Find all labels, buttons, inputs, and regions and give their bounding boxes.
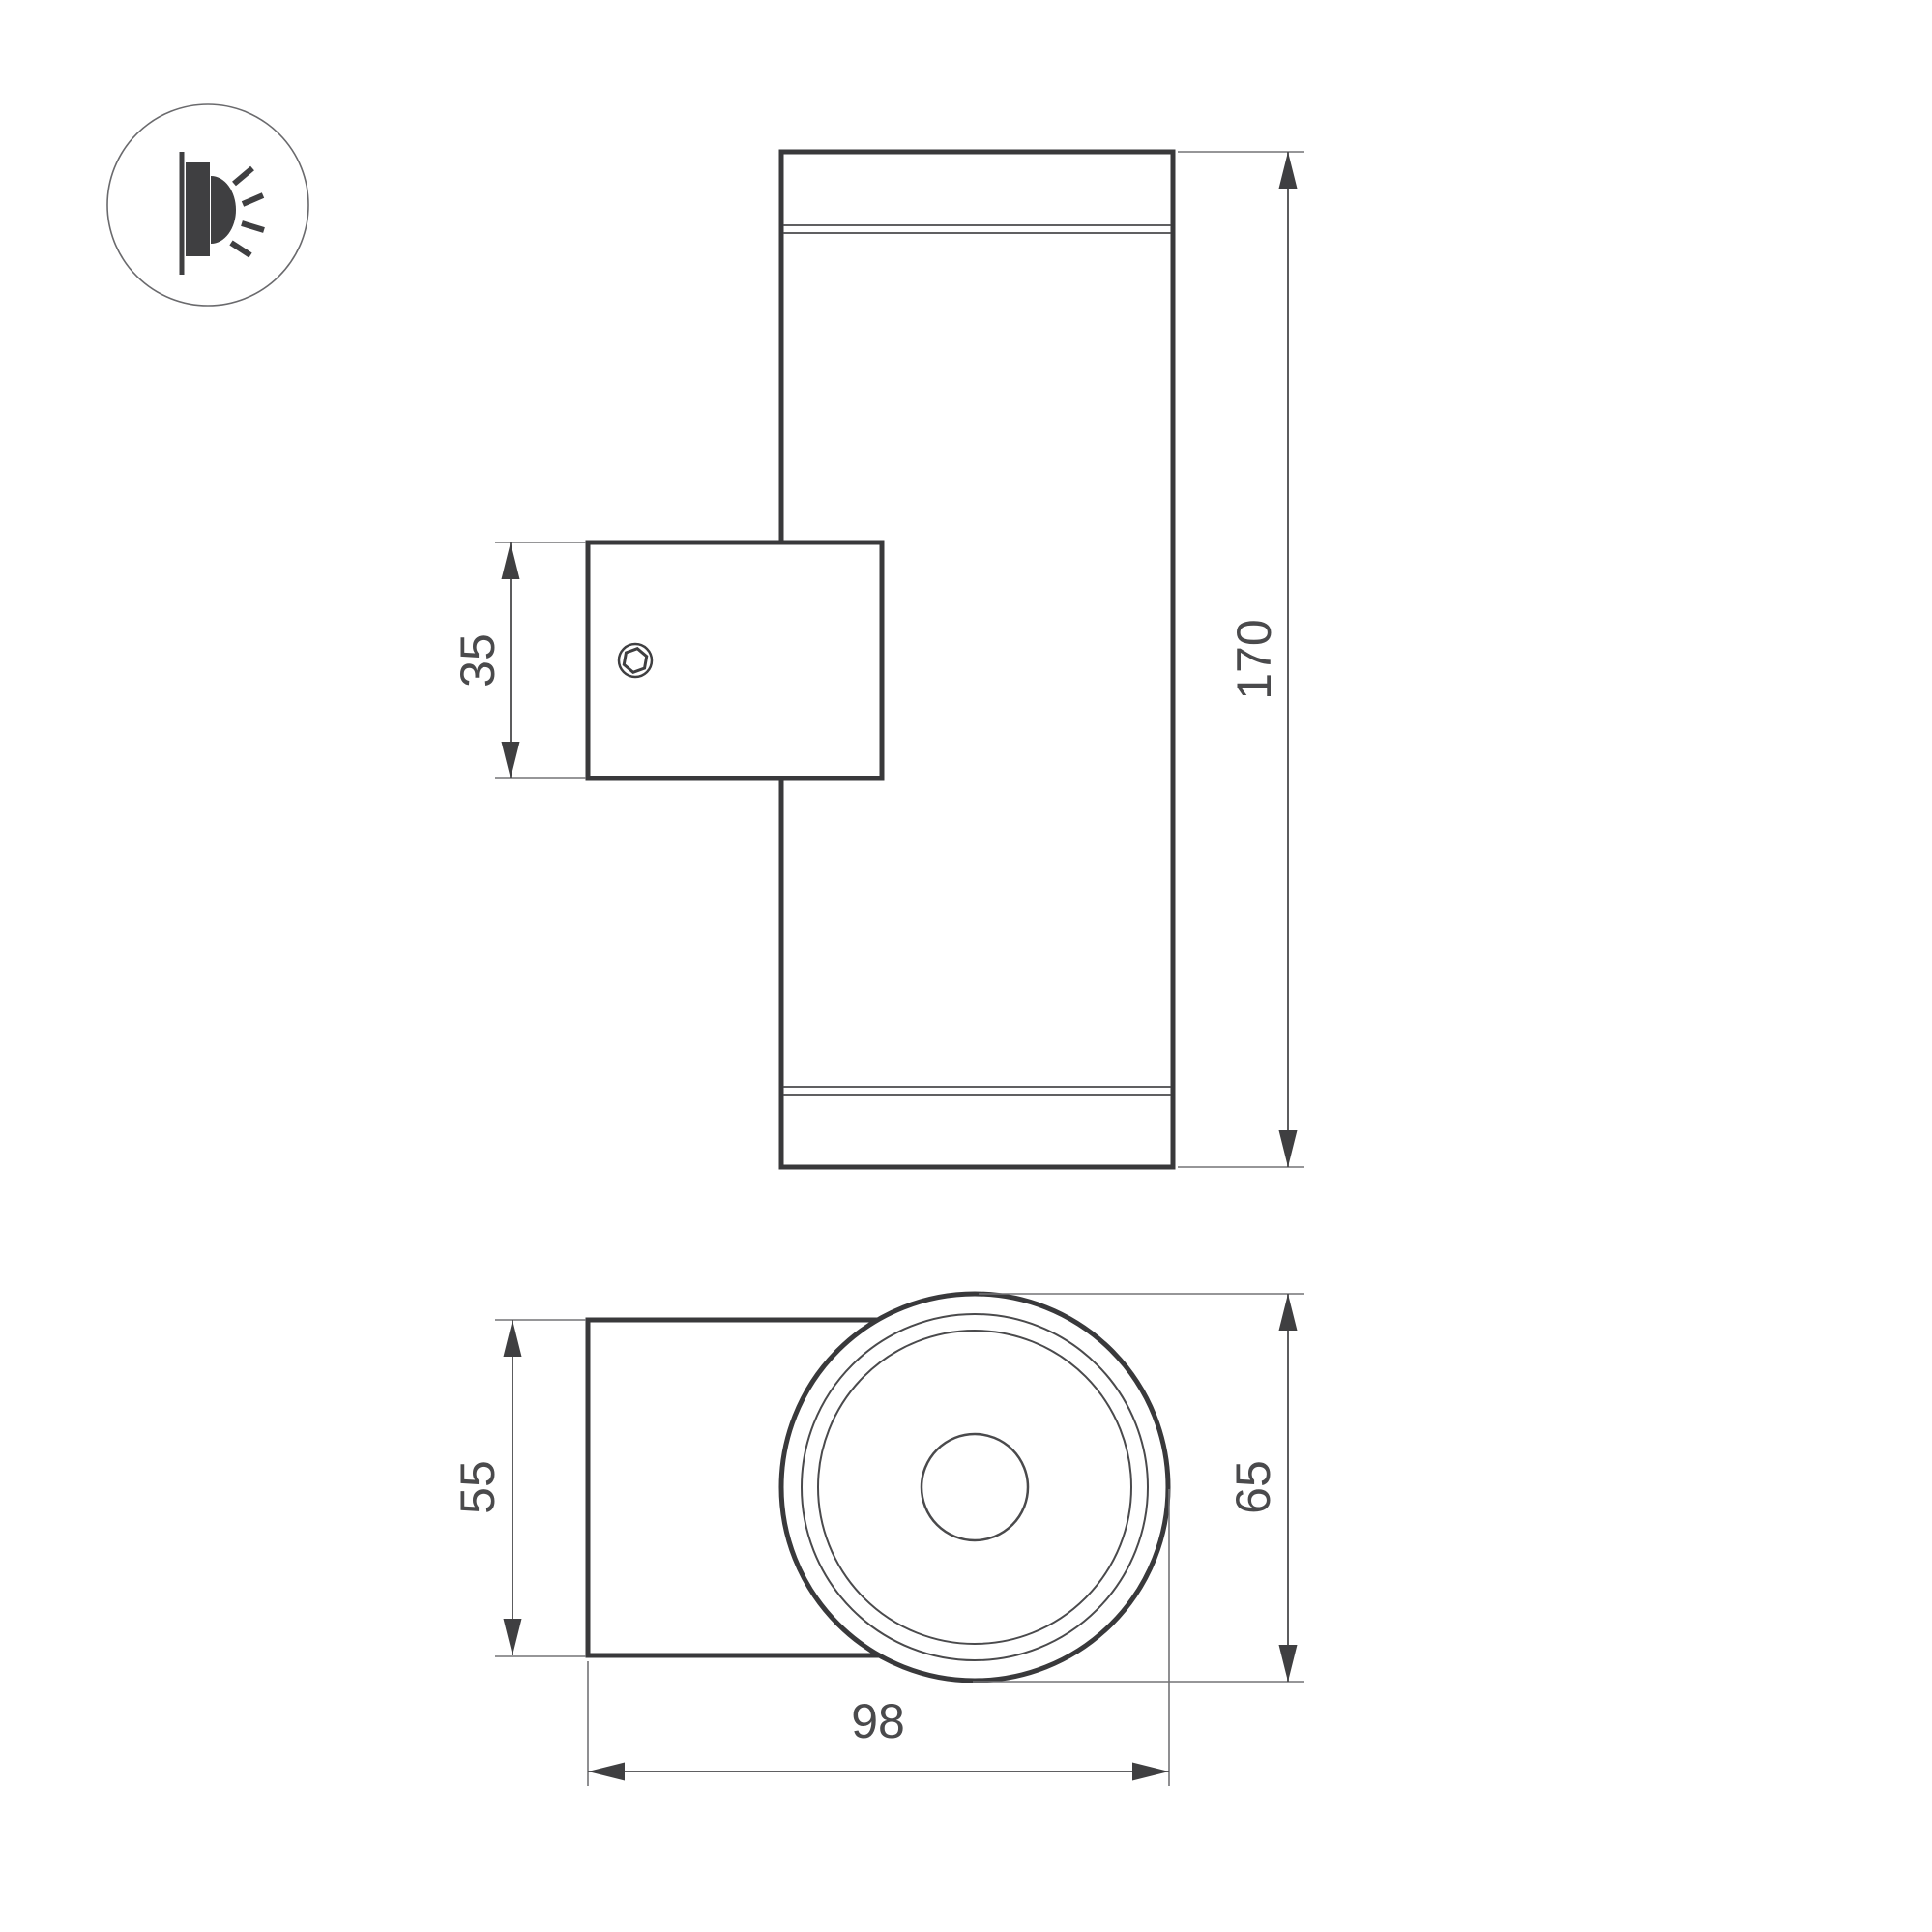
- lamp-led-circle: [922, 1434, 1028, 1540]
- arrow-up-icon: [1279, 1294, 1298, 1331]
- dimension-bracket-height: 35: [451, 542, 586, 778]
- arrow-up-icon: [504, 1320, 522, 1357]
- wall-light-icon: [107, 104, 308, 306]
- arrow-down-icon: [504, 1619, 522, 1655]
- technical-drawing-canvas: 35 170 55: [0, 0, 1932, 1932]
- dimension-total-height: 170: [1178, 152, 1304, 1167]
- arrow-right-icon: [1132, 1763, 1169, 1781]
- arrow-down-icon: [1279, 1130, 1298, 1167]
- arrow-left-icon: [588, 1763, 625, 1781]
- side-elevation-view: 35 170: [451, 152, 1304, 1167]
- dimension-body-depth: 55: [451, 1320, 586, 1656]
- icon-fixture-body: [186, 162, 210, 256]
- dim-label-total-depth: 98: [851, 1694, 905, 1748]
- arrow-up-icon: [1279, 152, 1298, 189]
- dim-label-total-height: 170: [1227, 619, 1281, 699]
- drawing-page: 35 170 55: [0, 0, 1932, 1932]
- top-plan-view: 55 65 98: [451, 1294, 1304, 1786]
- dim-label-bracket-height: 35: [451, 633, 505, 688]
- arrow-down-icon: [502, 742, 520, 778]
- arrow-up-icon: [502, 542, 520, 579]
- dim-label-lamp-diameter: 65: [1226, 1460, 1280, 1514]
- dim-label-body-depth: 55: [451, 1460, 505, 1514]
- arrow-down-icon: [1279, 1645, 1298, 1682]
